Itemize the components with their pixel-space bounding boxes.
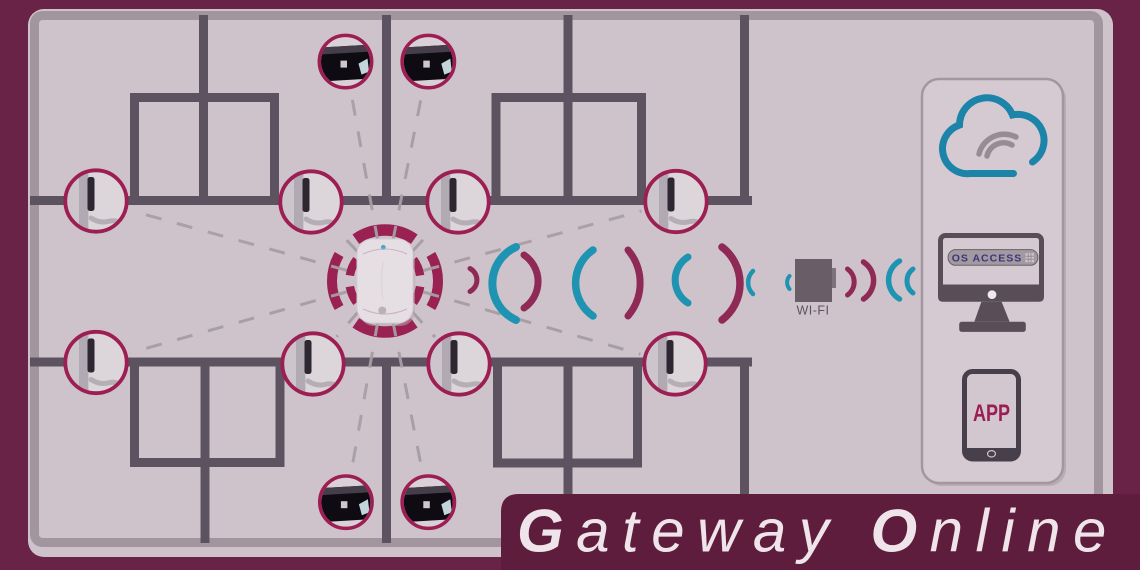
svg-text:APP: APP bbox=[973, 400, 1010, 427]
svg-text:WI-FI: WI-FI bbox=[796, 304, 829, 318]
svg-text:Gateway Online: Gateway Online bbox=[517, 498, 1119, 565]
svg-text:OS ACCESS: OS ACCESS bbox=[952, 252, 1022, 264]
